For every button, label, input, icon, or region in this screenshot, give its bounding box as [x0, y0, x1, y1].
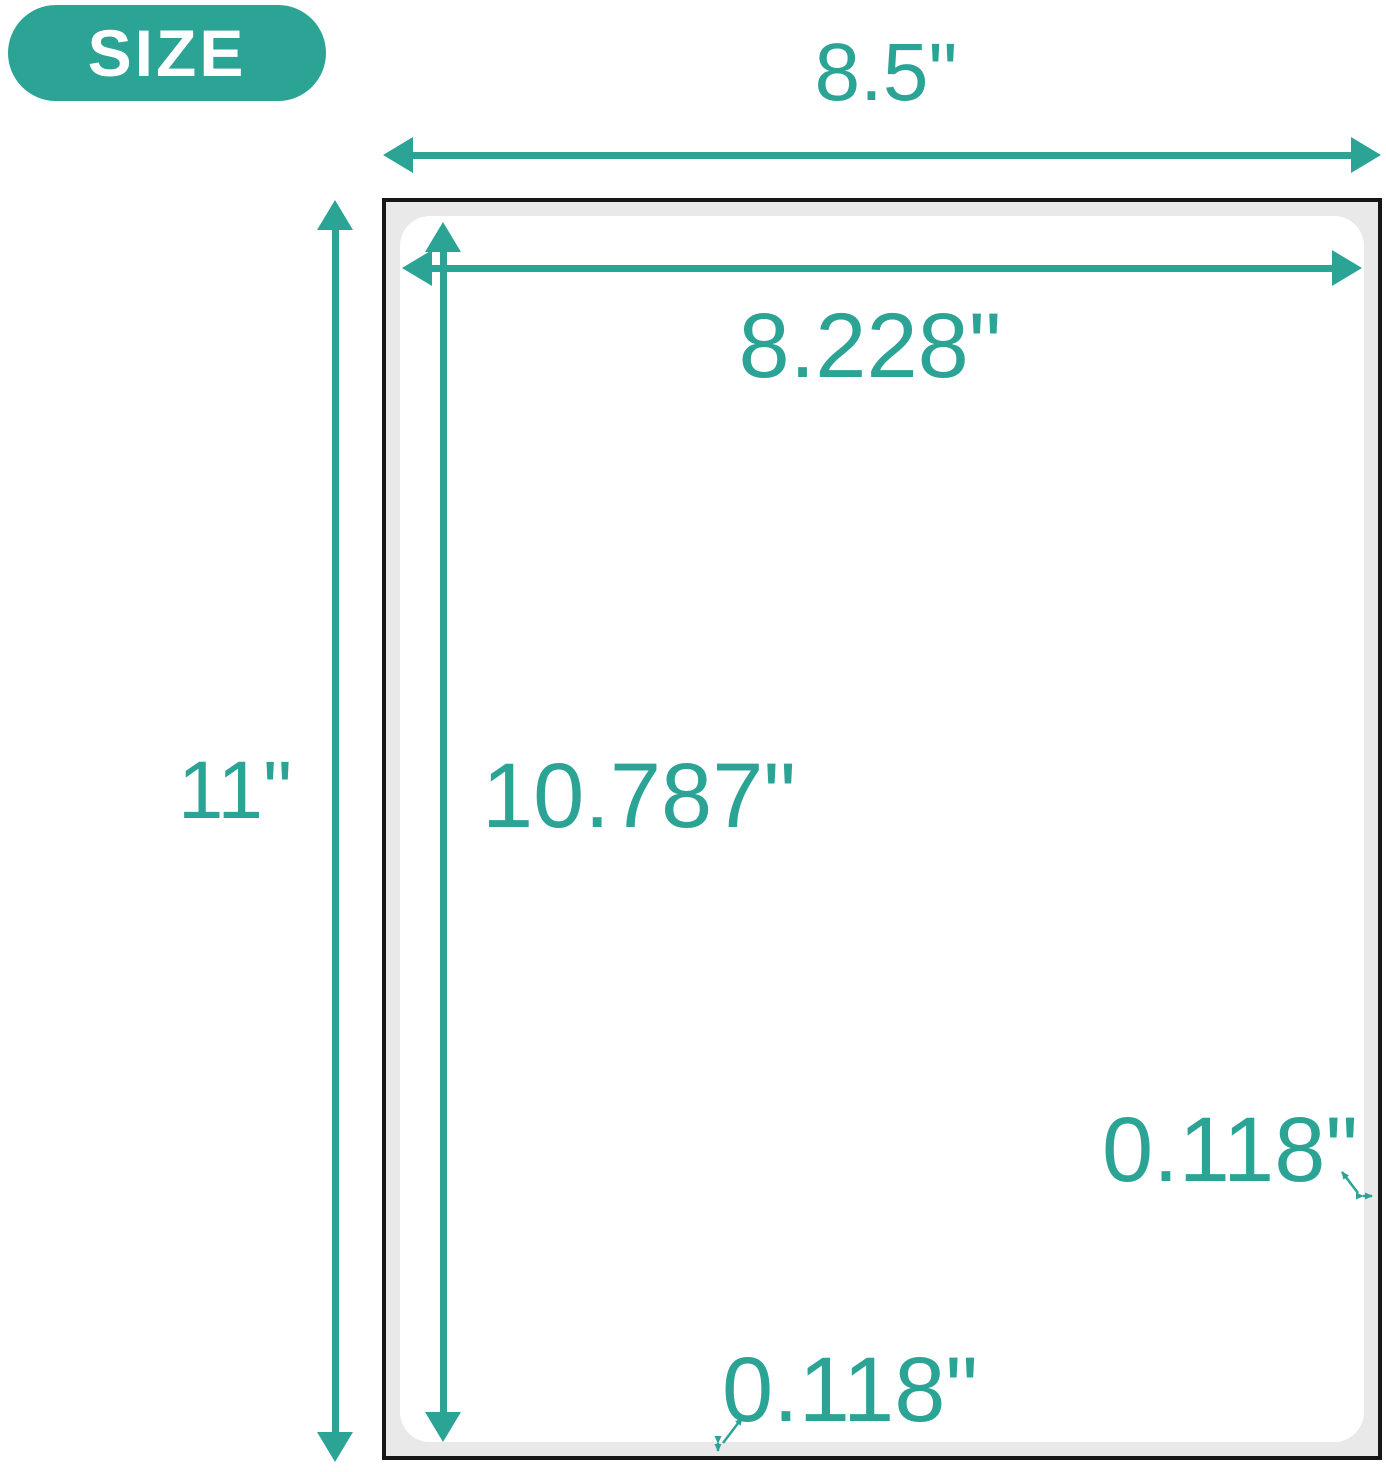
arrow-line	[440, 242, 447, 1422]
label-height-label: 10.787"	[482, 750, 796, 842]
size-badge: SIZE	[8, 5, 326, 101]
sheet-height-arrow-icon	[317, 200, 353, 1462]
arrow-line	[422, 265, 1342, 272]
arrowhead-down-icon	[425, 1412, 461, 1442]
arrowhead-left-icon	[383, 137, 413, 173]
arrowhead-up-icon	[317, 200, 353, 230]
label-width-arrow-icon	[402, 250, 1362, 286]
margin-right-leader-icon	[1330, 1158, 1386, 1206]
label-width-label: 8.228"	[660, 300, 1080, 392]
label-size-diagram: SIZE 8.5" 11" 8.228" 10.787" 0.118" 0.11…	[0, 0, 1386, 1472]
sheet-height-label: 11"	[120, 750, 350, 832]
arrow-line	[403, 152, 1361, 159]
arrowhead-up-icon	[425, 222, 461, 252]
arrowhead-right-icon	[1351, 137, 1381, 173]
label-height-arrow-icon	[425, 222, 461, 1442]
margin-bottom-leader-icon	[702, 1405, 762, 1461]
arrowhead-down-icon	[317, 1432, 353, 1462]
sheet-width-arrow-icon	[383, 137, 1381, 173]
size-badge-label: SIZE	[88, 20, 247, 86]
arrow-line	[332, 220, 339, 1442]
margin-right-label: 0.118"	[1090, 1104, 1370, 1196]
sheet-width-label: 8.5"	[686, 32, 1086, 114]
arrowhead-right-icon	[1332, 250, 1362, 286]
